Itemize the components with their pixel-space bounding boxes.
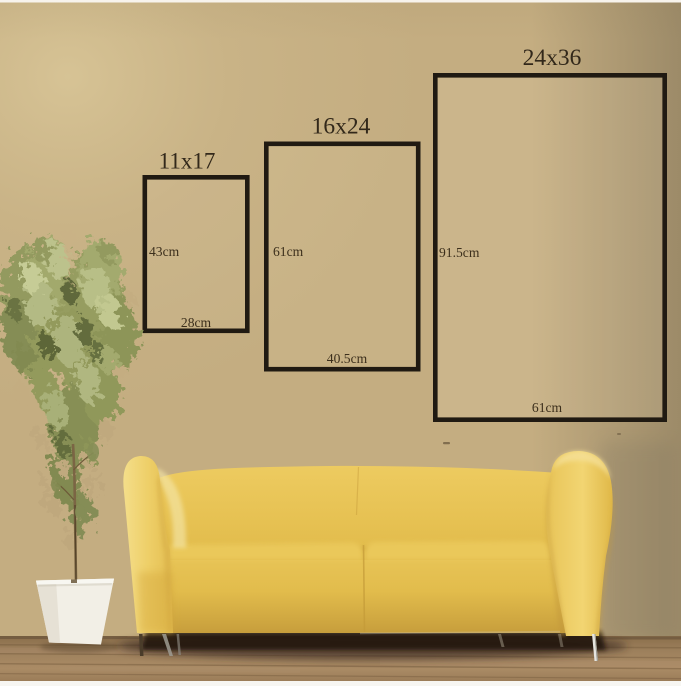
svg-text:40.5cm: 40.5cm [327, 351, 368, 366]
svg-text:43cm: 43cm [149, 244, 180, 259]
svg-text:24x36: 24x36 [523, 45, 582, 71]
svg-text:61cm: 61cm [532, 400, 563, 415]
svg-text:91.5cm: 91.5cm [439, 245, 480, 260]
svg-text:28cm: 28cm [181, 315, 212, 330]
svg-text:16x24: 16x24 [312, 114, 371, 140]
svg-text:61cm: 61cm [273, 244, 304, 259]
svg-text:11x17: 11x17 [159, 149, 216, 174]
